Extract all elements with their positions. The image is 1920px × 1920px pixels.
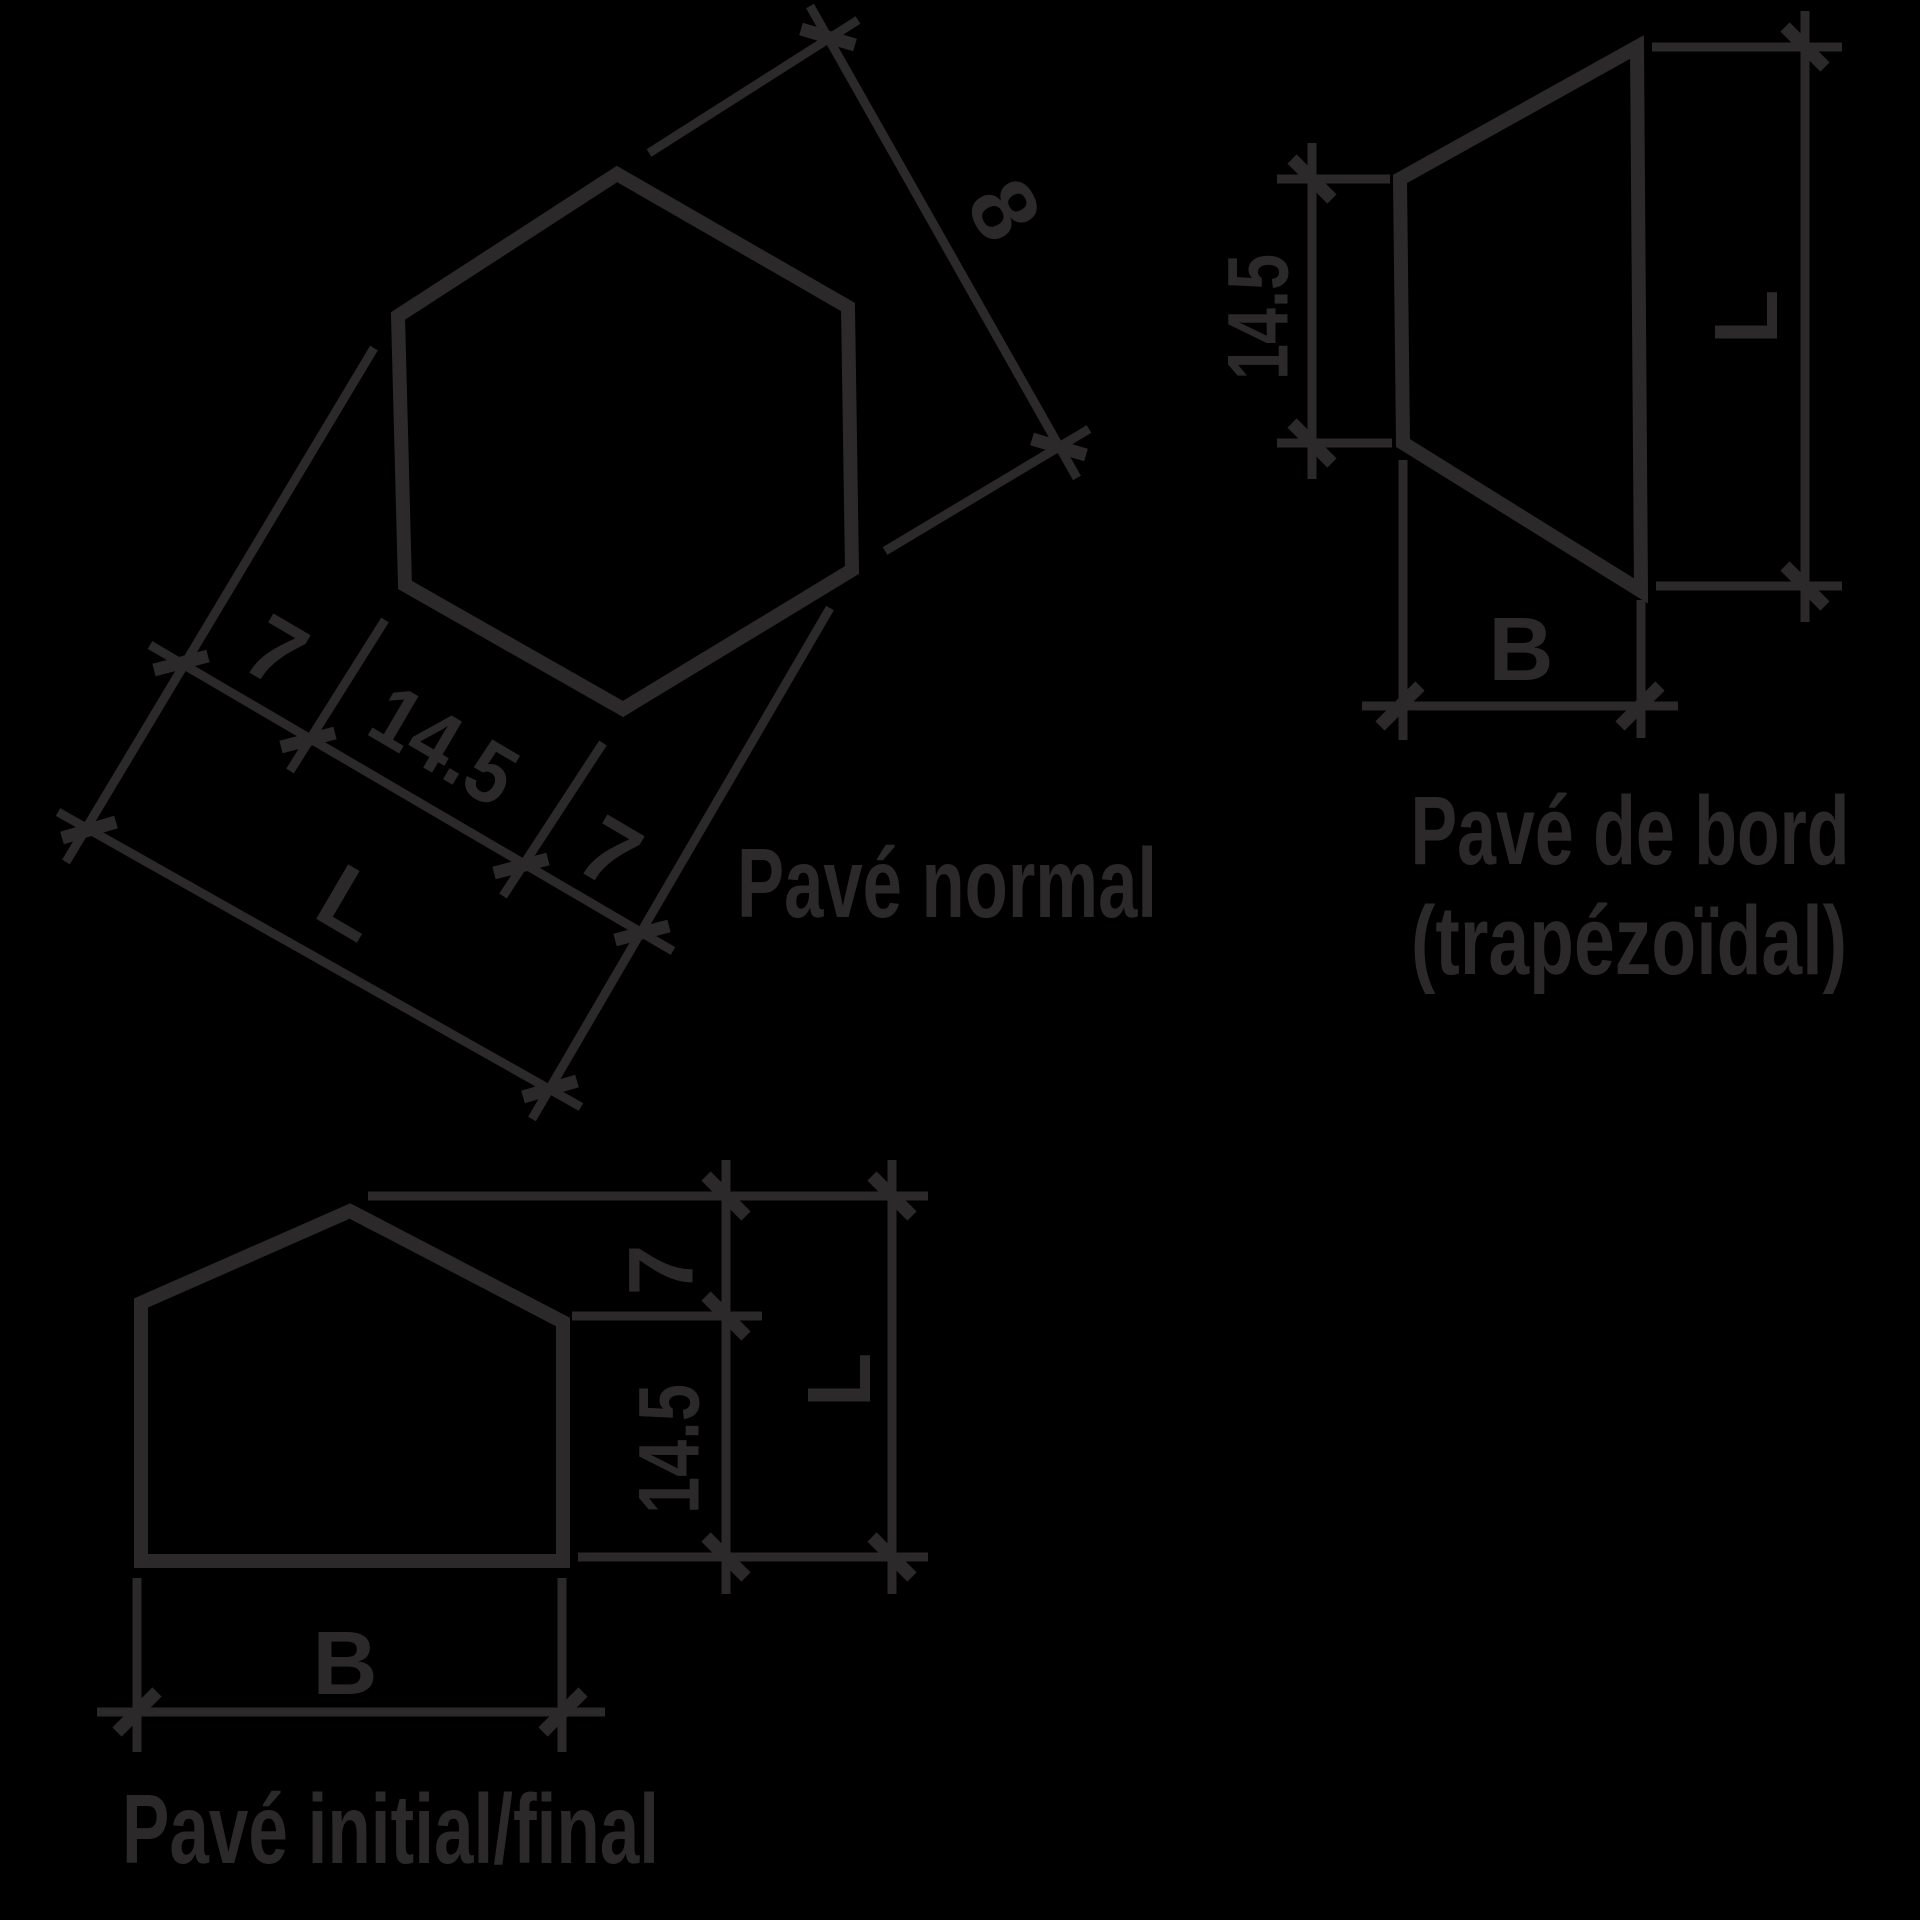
svg-text:14.5: 14.5	[1210, 254, 1306, 380]
svg-text:Pavé initial/final: Pavé initial/final	[122, 1774, 659, 1884]
svg-text:Pavé de bord: Pavé de bord	[1411, 776, 1850, 885]
svg-text:14.5: 14.5	[621, 1384, 717, 1514]
svg-text:(trapézoïdal): (trapézoïdal)	[1411, 886, 1847, 995]
svg-text:L: L	[1697, 290, 1797, 345]
svg-text:L: L	[790, 1353, 890, 1408]
svg-text:7: 7	[611, 1244, 713, 1295]
svg-text:Pavé normal: Pavé normal	[737, 828, 1157, 938]
svg-text:B: B	[313, 1614, 378, 1714]
svg-text:B: B	[1489, 600, 1554, 700]
